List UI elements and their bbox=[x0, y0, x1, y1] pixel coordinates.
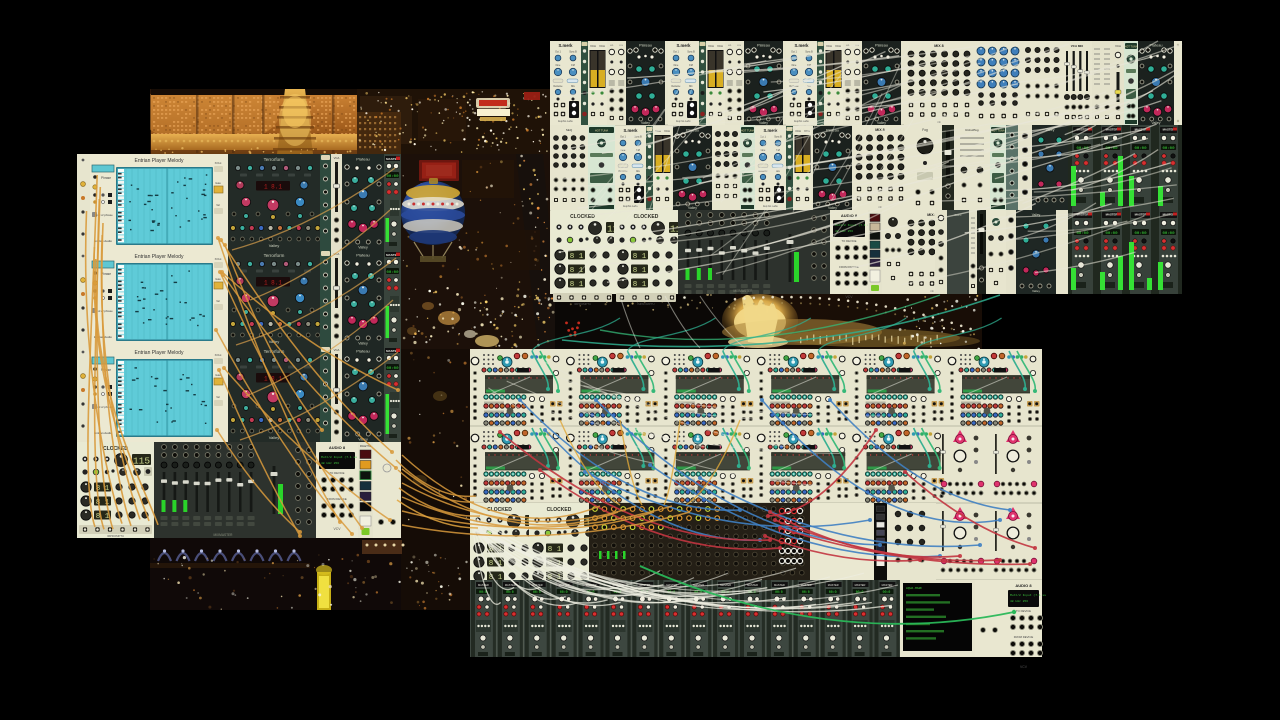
svg-text:00:00: 00:00 bbox=[386, 271, 399, 275]
svg-text:FM: FM bbox=[689, 64, 692, 67]
svg-text:Valley: Valley bbox=[641, 121, 650, 125]
svg-text:1 8.1: 1 8.1 bbox=[264, 280, 282, 287]
svg-text:S.merk: S.merk bbox=[559, 43, 574, 48]
svg-text:Oct 1: Oct 1 bbox=[673, 51, 679, 54]
svg-text:Vel: Vel bbox=[216, 299, 220, 303]
svg-text:MIXMASTER: MIXMASTER bbox=[214, 533, 234, 537]
svg-text:Valley: Valley bbox=[269, 243, 280, 248]
svg-text:Mult/2 Input (7.1 su: Mult/2 Input (7.1 su bbox=[321, 455, 357, 459]
svg-text:Plateau: Plateau bbox=[356, 349, 370, 354]
svg-text:00:00: 00:00 bbox=[1134, 232, 1147, 236]
svg-text:MIX 8: MIX 8 bbox=[934, 44, 943, 48]
svg-text:Terrorform: Terrorform bbox=[264, 253, 285, 258]
svg-text:8 1: 8 1 bbox=[633, 281, 647, 289]
svg-text:Sync B: Sync B bbox=[774, 136, 782, 139]
svg-text:Sync B: Sync B bbox=[569, 51, 577, 54]
svg-text:1 8.1: 1 8.1 bbox=[264, 184, 282, 191]
svg-text:X/Out: X/Out bbox=[215, 353, 222, 357]
svg-text:IMPROMPTU: IMPROMPTU bbox=[574, 302, 591, 306]
svg-text:Valley: Valley bbox=[1032, 289, 1040, 293]
svg-text:MASTER: MASTER bbox=[1163, 128, 1175, 132]
svg-text:IMPROMPTU: IMPROMPTU bbox=[637, 302, 654, 306]
svg-text:00:00: 00:00 bbox=[386, 367, 399, 371]
svg-text:Gate: Gate bbox=[215, 277, 221, 281]
svg-text:00:00: 00:00 bbox=[1162, 147, 1175, 151]
svg-text:Valley: Valley bbox=[688, 206, 697, 210]
svg-text:TO DEVICE: TO DEVICE bbox=[841, 239, 856, 243]
svg-text:48 kHz 256: 48 kHz 256 bbox=[321, 461, 339, 465]
svg-text:00:00: 00:00 bbox=[1162, 232, 1175, 236]
svg-text:Plateau: Plateau bbox=[639, 44, 652, 48]
svg-text:FROM DEVICE: FROM DEVICE bbox=[327, 497, 347, 501]
svg-text:End of phrase: End of phrase bbox=[95, 309, 113, 313]
svg-text:CLOCKED: CLOCKED bbox=[103, 446, 128, 452]
svg-text:Entrian Player Melody: Entrian Player Melody bbox=[135, 350, 184, 356]
svg-text:Fog: Fog bbox=[922, 128, 928, 132]
svg-text:VCA: VCA bbox=[717, 44, 723, 48]
svg-text:S.merk: S.merk bbox=[795, 43, 810, 48]
svg-text:Fine: Fine bbox=[674, 64, 679, 67]
svg-text:8 1: 8 1 bbox=[570, 253, 584, 261]
svg-text:VCA: VCA bbox=[708, 44, 714, 48]
svg-text:AUDIO 8: AUDIO 8 bbox=[329, 445, 346, 450]
svg-text:VCV: VCV bbox=[846, 295, 854, 299]
svg-text:00:00: 00:00 bbox=[1076, 232, 1089, 236]
svg-text:8 1: 8 1 bbox=[633, 253, 647, 261]
svg-text:DeGone: DeGone bbox=[554, 85, 564, 88]
svg-text:TO DEVICE: TO DEVICE bbox=[329, 471, 344, 475]
svg-text:00:00: 00:00 bbox=[1105, 232, 1118, 236]
svg-text:Oct 1: Oct 1 bbox=[791, 51, 797, 54]
svg-text:X/Out: X/Out bbox=[215, 161, 222, 165]
svg-text:Valley: Valley bbox=[828, 206, 837, 210]
svg-text:Phrase: Phrase bbox=[101, 176, 111, 180]
svg-text:X/Out: X/Out bbox=[215, 257, 222, 261]
svg-text:Valley: Valley bbox=[877, 121, 886, 125]
svg-text:8 1: 8 1 bbox=[570, 281, 584, 289]
svg-text:Valley: Valley bbox=[358, 342, 368, 346]
svg-text:00:00: 00:00 bbox=[386, 175, 399, 179]
svg-text:Plateau: Plateau bbox=[757, 44, 770, 48]
svg-text:Plateau: Plateau bbox=[875, 44, 888, 48]
svg-text:S.merk: S.merk bbox=[677, 43, 692, 48]
svg-text:Oct 1: Oct 1 bbox=[555, 51, 561, 54]
svg-text:HOT TUNA: HOT TUNA bbox=[595, 129, 608, 133]
svg-text:SEQ: SEQ bbox=[566, 128, 573, 132]
svg-text:Entrian Player Melody: Entrian Player Melody bbox=[135, 158, 184, 164]
svg-text:8 1: 8 1 bbox=[570, 267, 584, 275]
svg-text:VCA: VCA bbox=[1115, 44, 1121, 48]
svg-text:S.merk: S.merk bbox=[624, 128, 639, 133]
svg-text:MIXMASTER: MIXMASTER bbox=[734, 289, 754, 293]
svg-text:Entrian Audio: Entrian Audio bbox=[94, 431, 112, 435]
svg-text:VCV: VCV bbox=[334, 527, 342, 531]
svg-text:MASTER: MASTER bbox=[1106, 213, 1118, 217]
svg-text:Sync B: Sync B bbox=[687, 51, 695, 54]
svg-text:Fine: Fine bbox=[556, 64, 561, 67]
svg-text:Plateau: Plateau bbox=[356, 253, 370, 258]
svg-text:VCA: VCA bbox=[334, 156, 340, 160]
svg-text:Vel: Vel bbox=[216, 203, 220, 207]
svg-text:115: 115 bbox=[133, 456, 150, 467]
svg-text:Gate: Gate bbox=[215, 181, 221, 185]
svg-text:8 1: 8 1 bbox=[96, 513, 110, 521]
svg-text:Valley: Valley bbox=[358, 246, 368, 250]
svg-text:MASTER: MASTER bbox=[1135, 213, 1147, 217]
svg-text:VCA: VCA bbox=[334, 348, 340, 352]
svg-text:FM: FM bbox=[571, 64, 574, 67]
svg-text:VCA: VCA bbox=[835, 44, 841, 48]
svg-text:Valley: Valley bbox=[759, 121, 768, 125]
svg-text:Plateau: Plateau bbox=[356, 157, 370, 162]
svg-text:VCA: VCA bbox=[599, 44, 605, 48]
svg-text:VCA: VCA bbox=[590, 44, 596, 48]
svg-text:Vel: Vel bbox=[216, 395, 220, 399]
svg-text:HOT TUNA: HOT TUNA bbox=[1124, 45, 1137, 49]
svg-text:Entrian Player Melody: Entrian Player Melody bbox=[135, 254, 184, 260]
svg-text:HOT TUNA: HOT TUNA bbox=[741, 129, 754, 133]
svg-text:VCA MIX: VCA MIX bbox=[1071, 44, 1083, 48]
svg-text:IMPROMPTU: IMPROMPTU bbox=[107, 534, 124, 538]
svg-text:Sync B: Sync B bbox=[805, 51, 813, 54]
svg-text:8 1: 8 1 bbox=[633, 267, 647, 275]
svg-text:00:00: 00:00 bbox=[1134, 147, 1147, 151]
svg-text:Euphio Labs: Euphio Labs bbox=[558, 119, 573, 123]
svg-text:Terrorform: Terrorform bbox=[264, 157, 285, 162]
svg-text:VCA: VCA bbox=[826, 44, 832, 48]
